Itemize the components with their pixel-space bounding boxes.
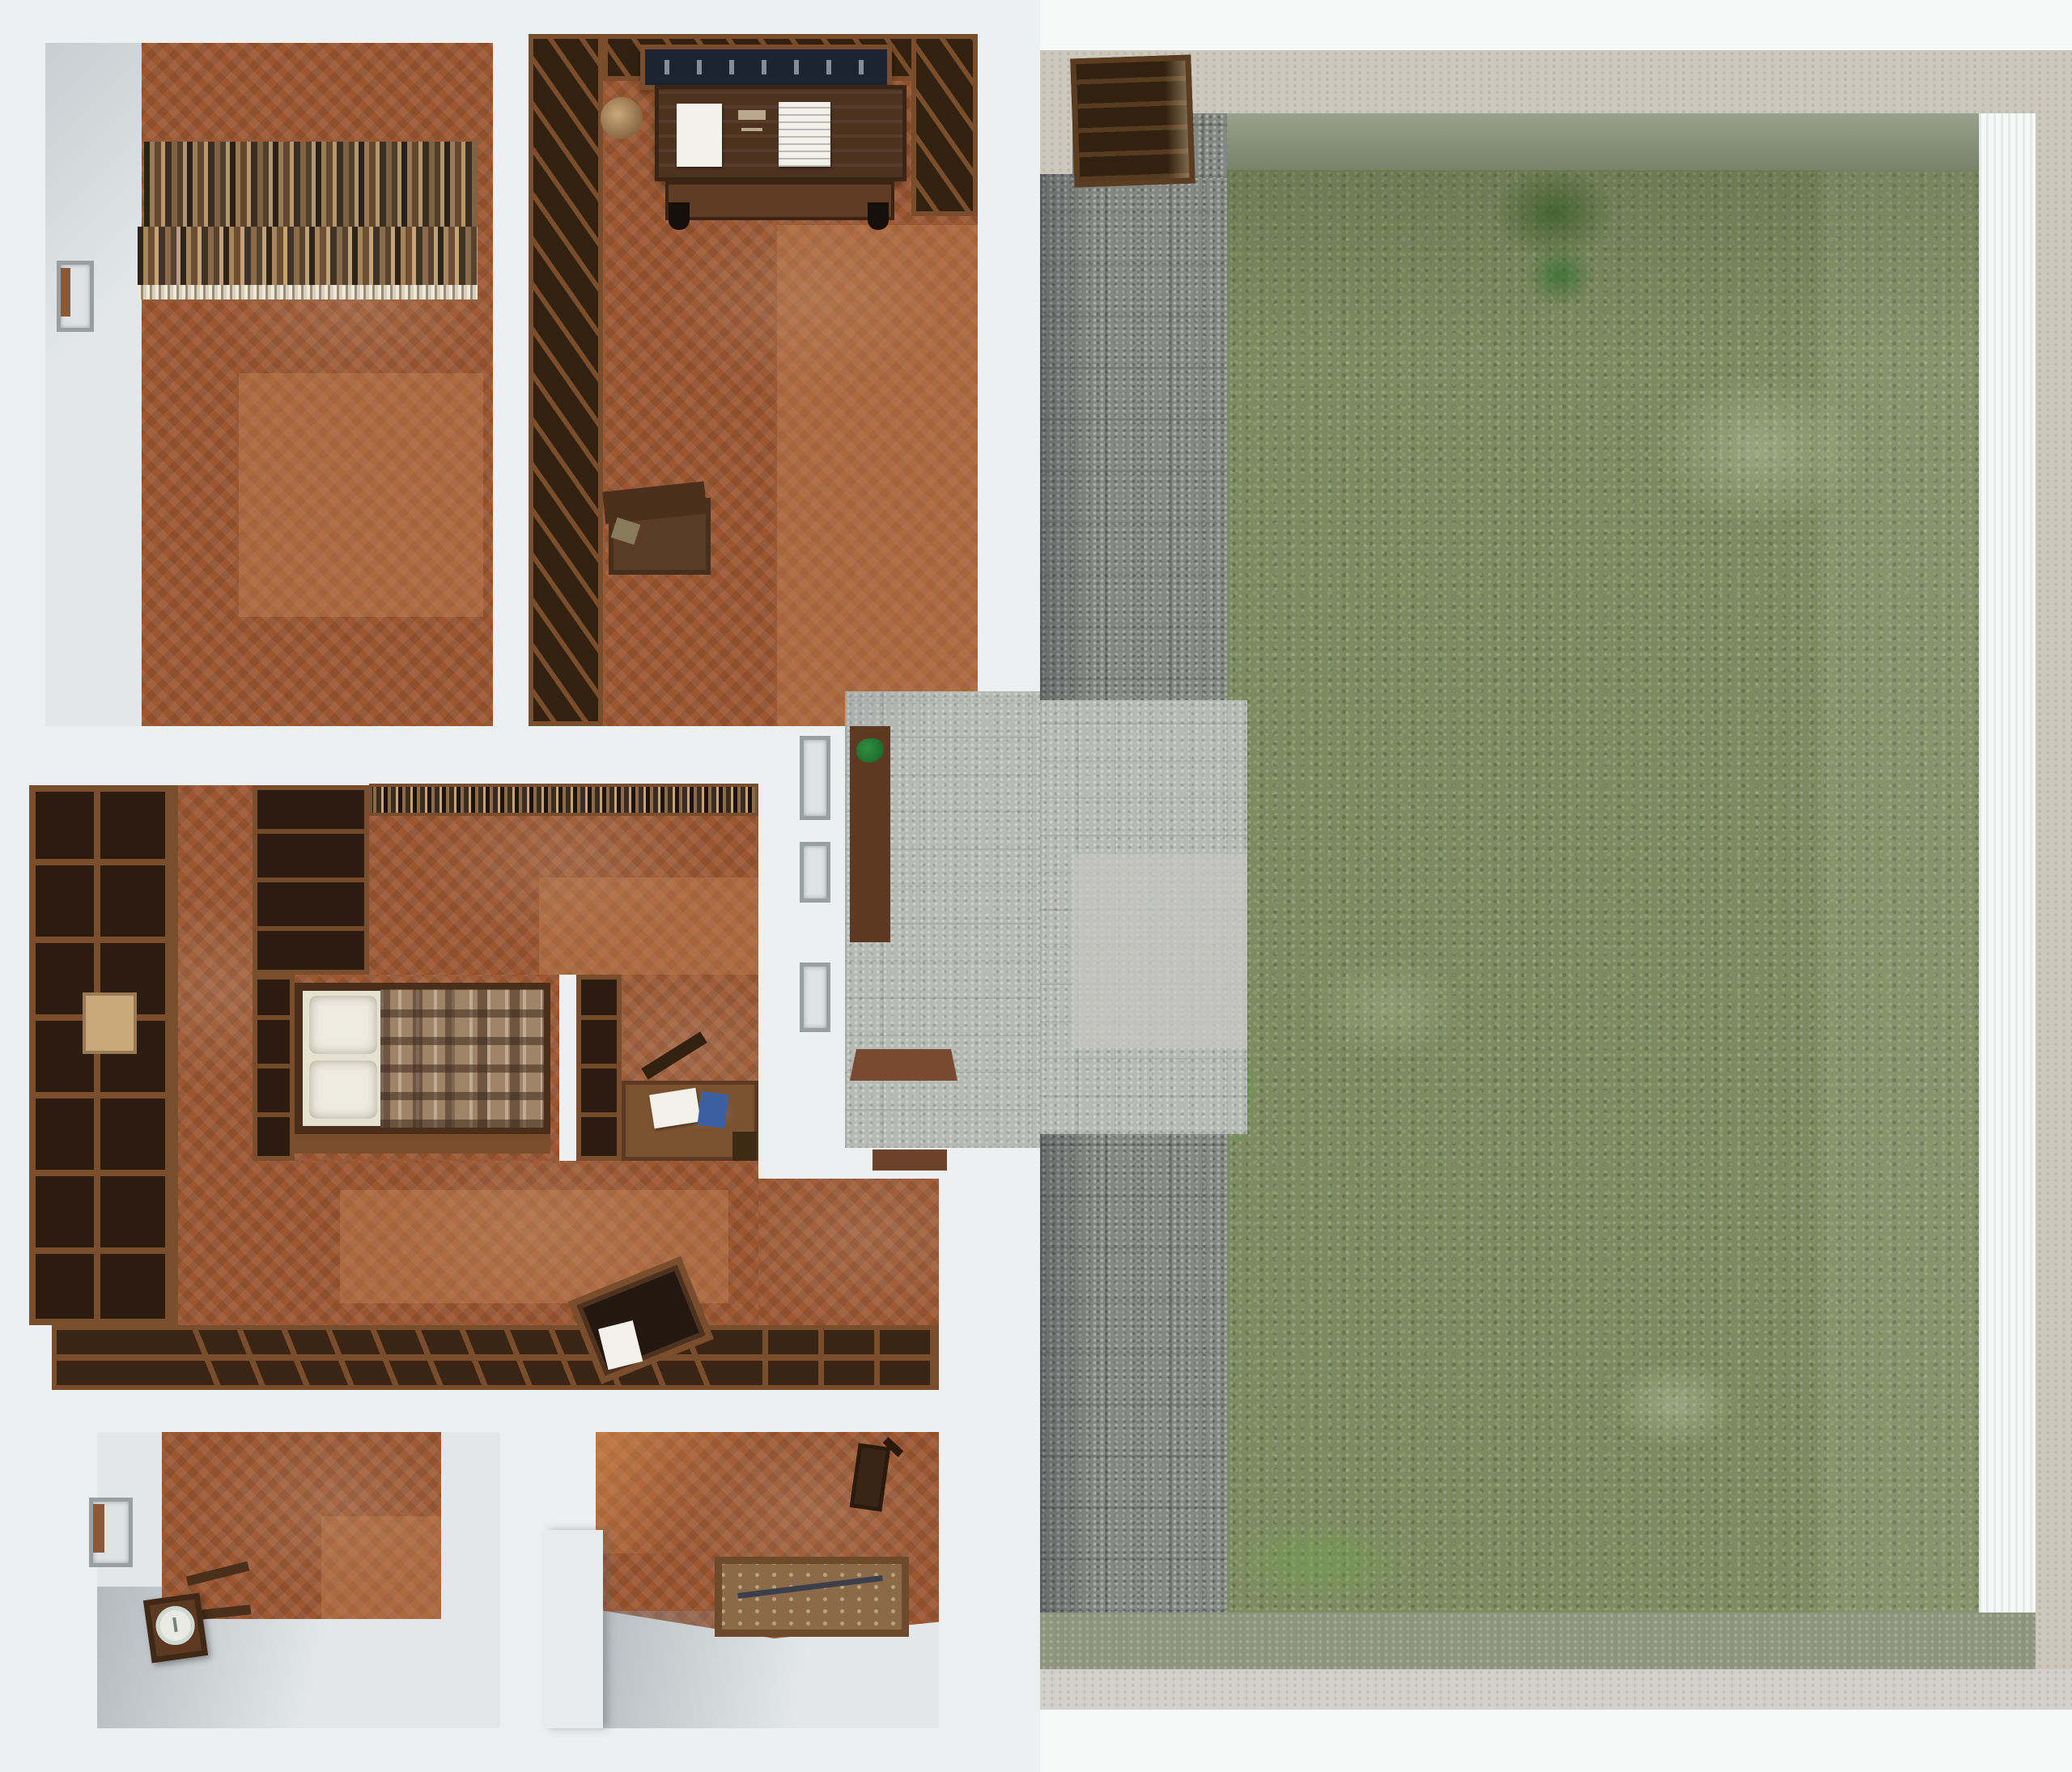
hall-wall-frame-1 (800, 736, 830, 820)
small-study-bookshelf (576, 975, 622, 1161)
north-wall (1040, 50, 2072, 113)
library-window-niche (57, 261, 94, 332)
floorplan-render (0, 0, 2072, 1772)
library-book-row-front (138, 227, 478, 285)
small-study-paper (649, 1088, 701, 1129)
west-bookcase-box-item (83, 992, 137, 1054)
living-area-southeast-floor (758, 1179, 939, 1325)
low-shelf-mid-rail (52, 1354, 939, 1361)
study-desk-paper-left (677, 104, 722, 167)
courtyard-gate (1070, 54, 1195, 187)
living-area-west-shelves (253, 785, 369, 975)
bottom-left-window-shutter (93, 1504, 104, 1553)
hall-wall-frame-3 (800, 962, 830, 1032)
bed-pillow-top (309, 996, 377, 1054)
hall-wall-frame-2 (800, 842, 830, 903)
study-painting-highlights (664, 60, 868, 74)
study-desk-paper-right (779, 102, 830, 167)
study-floor-highlight (777, 225, 978, 726)
crate-stick (737, 1575, 883, 1599)
north-wall-inner-face (1182, 113, 1979, 170)
south-wall-inner-face (1040, 1613, 2036, 1669)
lawn-dark-clump-2 (1526, 243, 1594, 308)
study-painting (640, 45, 892, 90)
study-corner-lamp (601, 97, 643, 139)
library-window-shutter (61, 268, 70, 317)
lawn-dry-patch-3 (1311, 955, 1465, 1060)
study-desk-lower-shelf (665, 181, 894, 220)
bed (295, 983, 550, 1134)
bed-plaid-blanket (380, 989, 544, 1128)
study-corner-bookshelf (911, 34, 978, 216)
library-floor-highlight (239, 373, 483, 617)
bedroom-side-shelf (253, 975, 295, 1161)
lawn-bright-tuft-bottom (1230, 1522, 1408, 1603)
study-left-bookshelf (529, 34, 603, 726)
storage-crate (715, 1557, 909, 1637)
small-study-blue-book (698, 1091, 729, 1128)
study-desk-foot-right (868, 202, 889, 230)
entry-terrace-light-patch (1072, 854, 1247, 1048)
clock-hands (172, 1617, 177, 1632)
bottom-partition-wall (544, 1530, 603, 1728)
east-wall (2036, 50, 2072, 1708)
fallen-clock-face (153, 1604, 197, 1647)
living-area-top-shelf-books (369, 784, 758, 816)
fallen-clock-case (143, 1593, 208, 1664)
bed-pillow-bottom (309, 1060, 377, 1119)
hall-door-mat (850, 1049, 957, 1081)
bottom-left-window-niche (89, 1498, 133, 1567)
study-desk-inkset (738, 110, 766, 120)
small-study-stool (732, 1132, 757, 1161)
bed-foot-rail (295, 1134, 550, 1154)
lawn-right-light-band (1821, 170, 1979, 1613)
bottom-left-parquet-patch (321, 1516, 441, 1619)
low-shelf-row (52, 1325, 939, 1390)
library-book-row-back (144, 142, 478, 227)
study-crate-glint (611, 517, 641, 545)
east-wall-inner-face (1979, 113, 2036, 1669)
study-floor-crate (609, 498, 711, 575)
bottom-middle-light-wedge (596, 1432, 774, 1553)
library-book-pages-edge (138, 285, 478, 300)
west-bookcase (29, 785, 178, 1325)
south-wall (1040, 1669, 2072, 1710)
gate-open-leaf-glint (1164, 61, 1189, 179)
hall-south-step (873, 1149, 947, 1171)
study-desk-foot-left (669, 202, 690, 230)
lawn-dry-patch-1 (1651, 372, 1870, 526)
north-wall-gate-pier (1040, 50, 1072, 174)
living-area-floor-patch (539, 878, 758, 975)
lawn-dry-patch-2 (1611, 1360, 1740, 1449)
